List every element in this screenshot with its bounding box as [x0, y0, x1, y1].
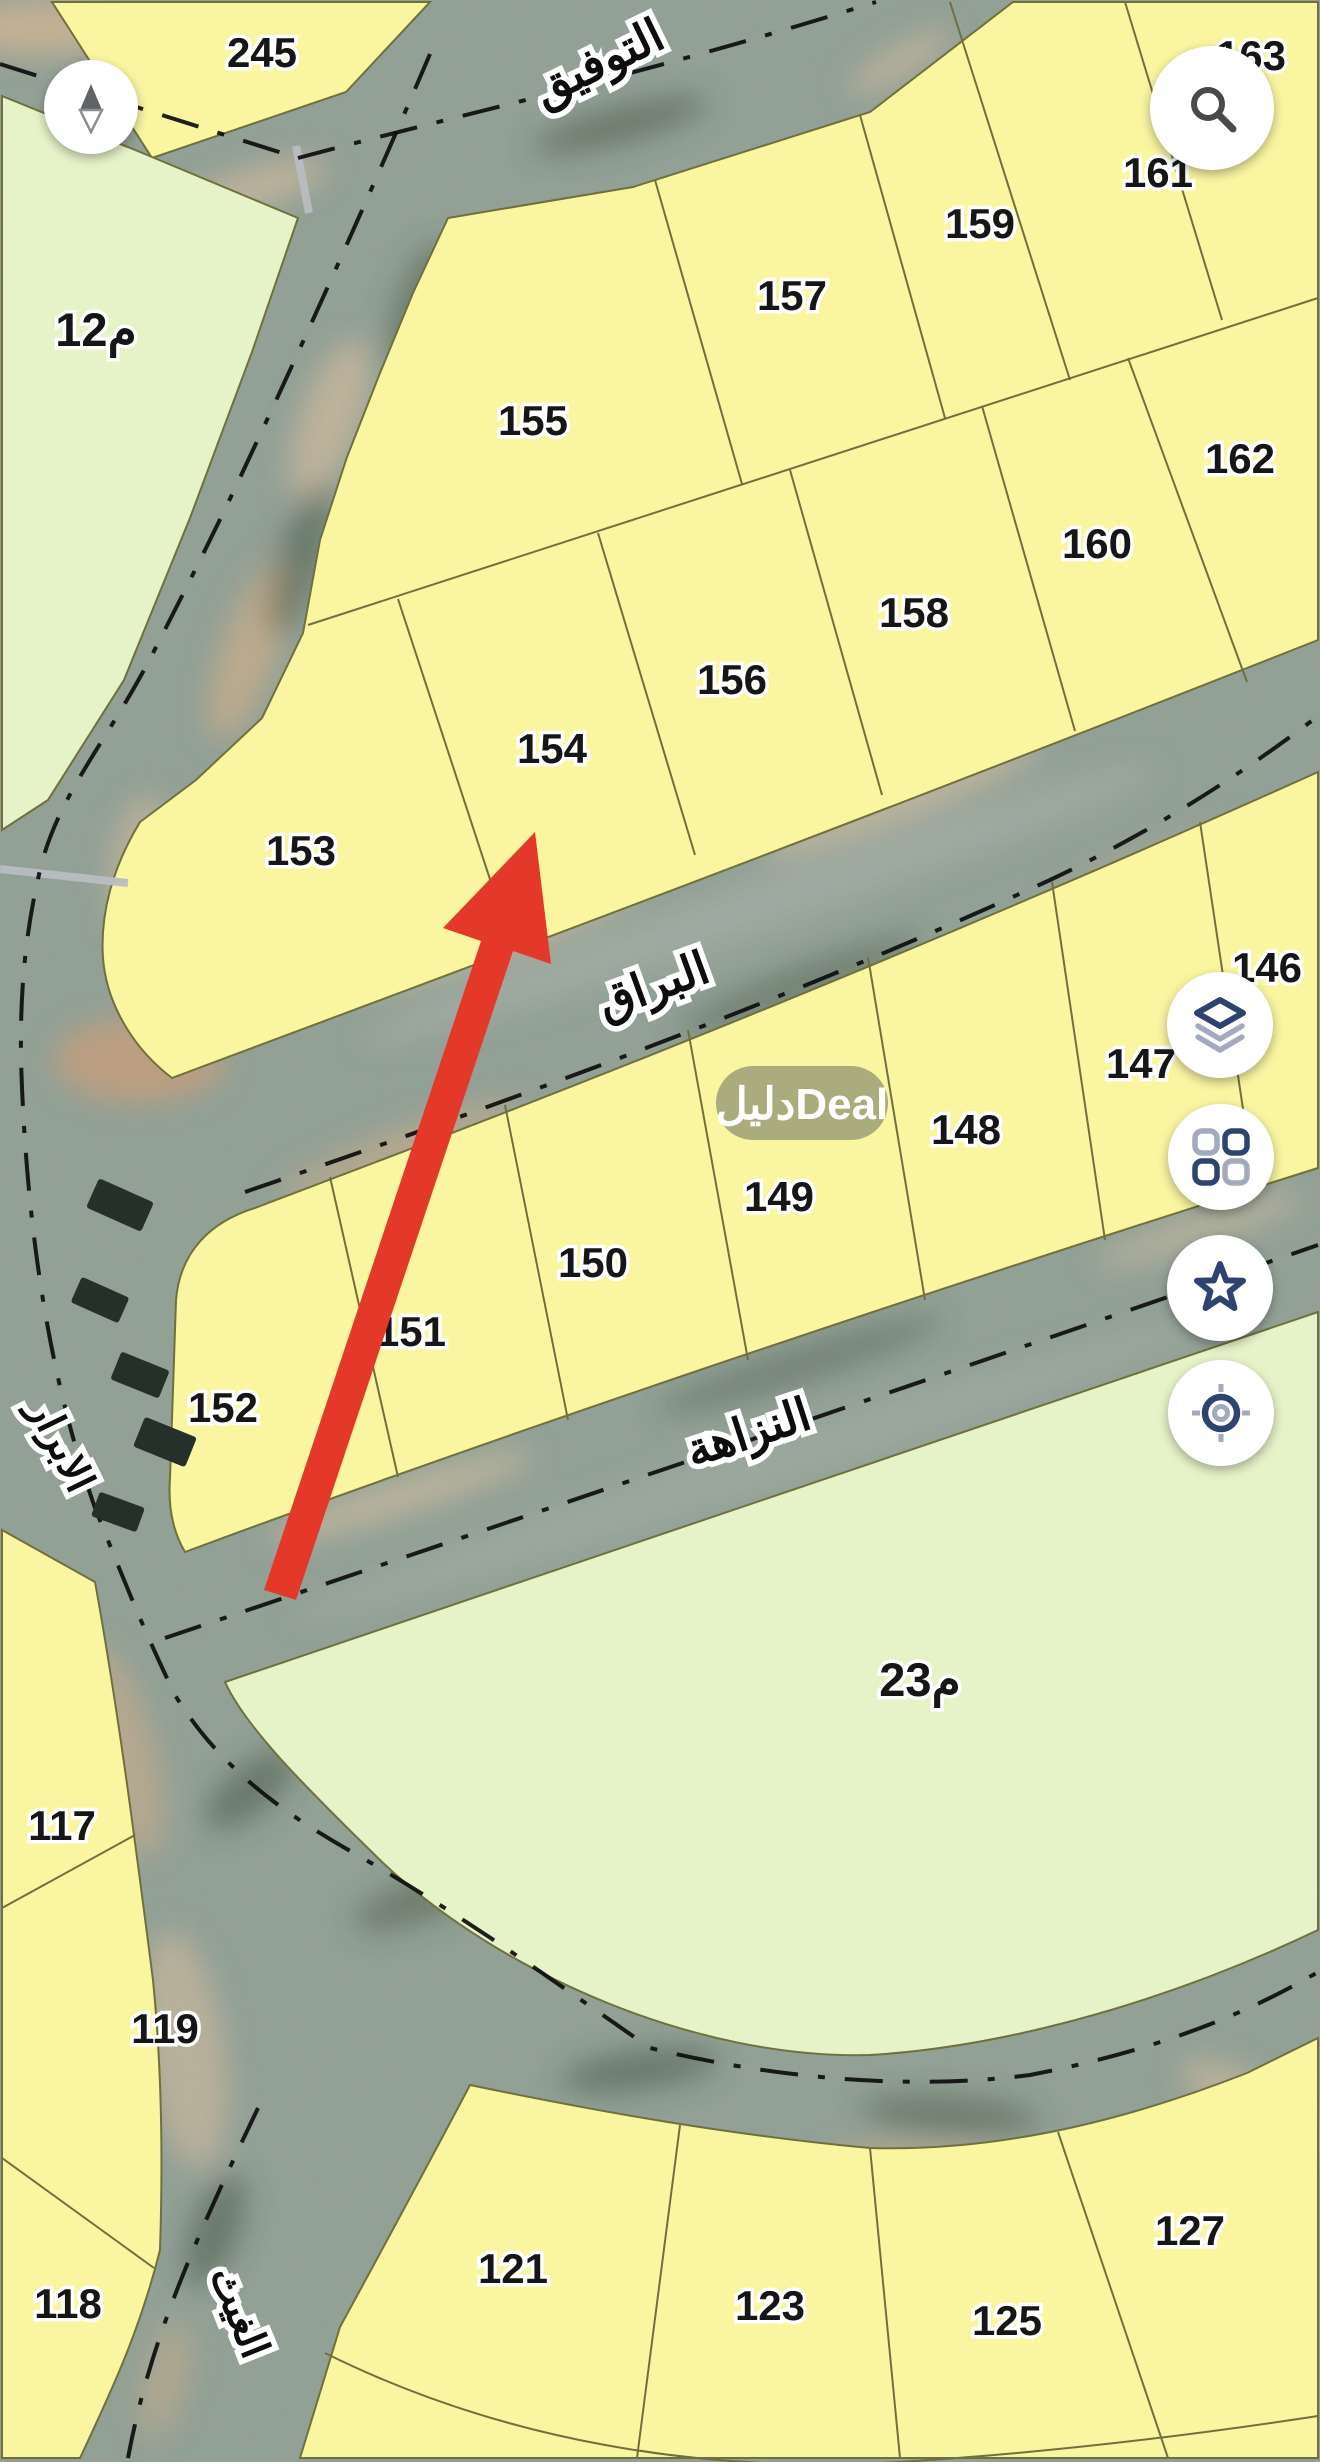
parcel-label-118: 118 — [34, 2280, 102, 2327]
parcel-label-158: 158 — [879, 589, 949, 636]
parcel-label-147: 147 — [1106, 1040, 1176, 1087]
search-icon — [1181, 77, 1243, 139]
parcel-label-162: 162 — [1205, 435, 1275, 482]
parcel-label-149: 149 — [744, 1173, 814, 1220]
layers-icon — [1189, 994, 1251, 1056]
compass-north-icon — [64, 80, 118, 134]
grid-icon — [1191, 1127, 1251, 1187]
layers-button[interactable] — [1167, 972, 1273, 1078]
parcel-label-155: 155 — [498, 397, 568, 444]
parcel-label-245: 245 — [227, 29, 297, 76]
locate-button[interactable] — [1168, 1360, 1274, 1466]
parcel-label-160: 160 — [1062, 520, 1132, 567]
map-app-screenshot: التوفيق البراق النزاهة الابرار الغيث 245… — [0, 0, 1320, 2462]
parcel-label-154: 154 — [517, 725, 588, 772]
parcel-label-117: 117 — [28, 1802, 96, 1849]
parcel-label-157: 157 — [757, 272, 827, 319]
apps-grid-button[interactable] — [1168, 1104, 1274, 1210]
parcel-label-119: 119 — [131, 2005, 199, 2052]
parcel-label-150: 150 — [558, 1239, 628, 1286]
parcel-label-159: 159 — [945, 200, 1015, 247]
zone-label-12m: 12م — [55, 303, 136, 359]
locate-icon — [1190, 1382, 1252, 1444]
compass-button[interactable] — [44, 60, 138, 154]
star-icon — [1189, 1257, 1251, 1319]
parcel-label-152: 152 — [188, 1384, 258, 1431]
zone-label-23m: 23م — [879, 1653, 960, 1709]
parcel-label-156: 156 — [697, 656, 767, 703]
watermark-logo-text: دليلDeal — [716, 1080, 889, 1129]
parcel-label-127: 127 — [1155, 2207, 1225, 2254]
parcel-label-121: 121 — [478, 2245, 548, 2292]
parcel-label-123: 123 — [735, 2282, 805, 2329]
parcel-label-148: 148 — [931, 1106, 1001, 1153]
map-canvas[interactable]: التوفيق البراق النزاهة الابرار الغيث 245… — [0, 0, 1320, 2462]
parcel-label-125: 125 — [972, 2297, 1042, 2344]
parcel-label-153: 153 — [266, 827, 336, 874]
watermark: دليلDeal — [716, 1066, 889, 1140]
search-button[interactable] — [1150, 46, 1274, 170]
favorites-button[interactable] — [1167, 1235, 1273, 1341]
